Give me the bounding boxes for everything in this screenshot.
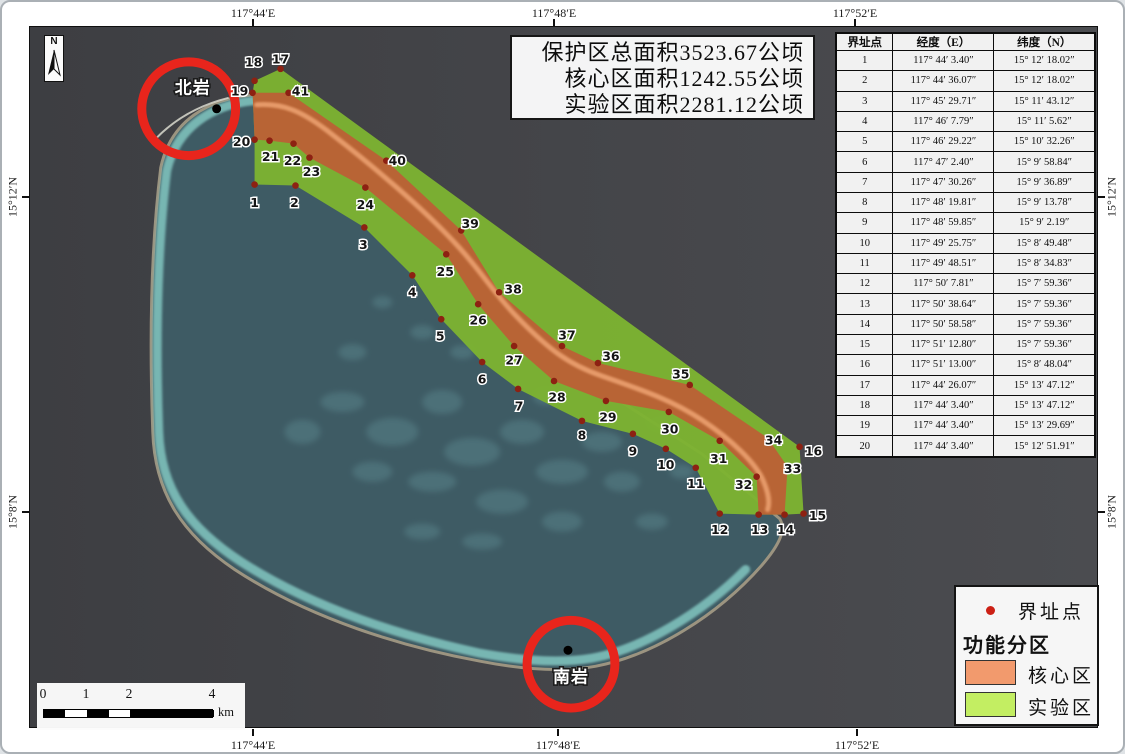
table-row: 11117° 49′ 48.51″15° 8′ 34.83″ — [836, 253, 1095, 273]
table-cell: 6 — [836, 152, 893, 172]
table-cell: 1 — [836, 51, 893, 71]
boundary-point-label: 27 — [505, 353, 522, 368]
landmark-label: 南岩 — [553, 667, 589, 687]
boundary-point-label: 28 — [548, 389, 565, 404]
table-cell: 117° 44′ 3.40″ — [893, 395, 994, 415]
axis-label-latitude: 15°12′N — [6, 177, 21, 217]
table-cell: 117° 51′ 13.00″ — [893, 355, 994, 375]
table-cell: 15° 7′ 59.36″ — [994, 314, 1095, 334]
axis-tick — [22, 511, 29, 513]
table-cell: 15° 7′ 59.36″ — [994, 294, 1095, 314]
boundary-point-label: 40 — [389, 153, 407, 168]
boundary-point-label: 36 — [602, 349, 619, 364]
boundary-point-label: 2 — [290, 195, 299, 210]
area-info-box: 保护区总面积3523.67公顷核心区面积1242.55公顷实验区面积2281.1… — [510, 35, 815, 120]
table-cell: 11 — [836, 253, 893, 273]
boundary-point-dot — [277, 66, 284, 73]
north-arrow-icon — [46, 48, 62, 78]
table-cell: 117° 44′ 3.40″ — [893, 436, 994, 457]
table-cell: 13 — [836, 294, 893, 314]
boundary-point-label: 12 — [711, 522, 728, 537]
table-cell: 4 — [836, 111, 893, 131]
table-cell: 117° 44′ 3.40″ — [893, 51, 994, 71]
legend-item-label: 实验区 — [1028, 693, 1094, 720]
boundary-point-dot — [666, 409, 673, 416]
table-cell: 15° 11′ 43.12″ — [994, 91, 1095, 111]
table-cell: 14 — [836, 314, 893, 334]
area-info-line: 保护区总面积3523.67公顷 — [518, 40, 804, 66]
boundary-point-dot — [443, 251, 450, 258]
table-row: 12117° 50′ 7.81″15° 7′ 59.36″ — [836, 274, 1095, 294]
axis-label-latitude: 15°8′N — [6, 495, 21, 529]
table-cell: 15° 9′ 2.19″ — [994, 213, 1095, 233]
boundary-point-dot — [559, 343, 566, 350]
table-cell: 18 — [836, 395, 893, 415]
boundary-point-label: 18 — [245, 54, 262, 69]
boundary-point-label: 33 — [784, 461, 801, 476]
north-arrow: N — [44, 35, 64, 82]
table-cell: 19 — [836, 416, 893, 436]
scale-bar-segment — [109, 710, 130, 717]
table-cell: 117° 51′ 12.80″ — [893, 334, 994, 354]
table-row: 16117° 51′ 13.00″15° 8′ 48.04″ — [836, 355, 1095, 375]
boundary-point-dot — [511, 343, 518, 350]
boundary-point-label: 37 — [558, 328, 575, 343]
boundary-point-label: 11 — [687, 476, 704, 491]
boundary-point-label: 26 — [469, 313, 486, 328]
table-row: 8117° 48′ 19.81″15° 9′ 13.78″ — [836, 192, 1095, 212]
table-cell: 117° 49′ 48.51″ — [893, 253, 994, 273]
boundary-point-dot — [579, 418, 586, 425]
table-cell: 117° 44′ 3.40″ — [893, 416, 994, 436]
axis-label-latitude: 15°12′N — [1105, 177, 1120, 217]
axis-tick — [252, 729, 254, 736]
table-cell: 17 — [836, 375, 893, 395]
table-header-cell: 经度（E） — [893, 33, 994, 51]
boundary-point-dot — [362, 184, 369, 191]
scale-bar-number: 4 — [209, 686, 216, 702]
scale-bar-segment — [130, 710, 214, 717]
table-cell: 15° 8′ 48.04″ — [994, 355, 1095, 375]
axis-label-longitude: 117°44′E — [231, 738, 275, 753]
table-row: 4117° 46′ 7.79″15° 11′ 5.62″ — [836, 111, 1095, 131]
scale-bar-unit: km — [218, 705, 234, 720]
scale-bar-number: 0 — [40, 686, 47, 702]
boundary-point-label: 4 — [408, 285, 417, 300]
table-row: 17117° 44′ 26.07″15° 13′ 47.12″ — [836, 375, 1095, 395]
boundary-point-dot — [595, 360, 602, 367]
axis-tick — [553, 19, 555, 26]
boundary-point-dot — [716, 438, 723, 445]
table-cell: 7 — [836, 172, 893, 192]
table-cell: 20 — [836, 436, 893, 457]
table-cell: 15° 7′ 59.36″ — [994, 334, 1095, 354]
legend-group-title: 功能分区 — [963, 629, 1051, 658]
boundary-point-dot — [266, 137, 273, 144]
boundary-point-dot — [551, 378, 558, 385]
table-cell: 117° 44′ 26.07″ — [893, 375, 994, 395]
table-cell: 3 — [836, 91, 893, 111]
table-cell: 8 — [836, 192, 893, 212]
scale-bar-number: 2 — [126, 686, 133, 702]
boundary-point-dot — [361, 224, 368, 231]
boundary-point-dot — [663, 446, 670, 453]
table-cell: 5 — [836, 132, 893, 152]
table-cell: 15° 7′ 59.36″ — [994, 274, 1095, 294]
boundary-point-label: 17 — [272, 51, 289, 66]
table-cell: 2 — [836, 71, 893, 91]
area-info-line: 实验区面积2281.12公顷 — [518, 92, 804, 118]
landmark-dot — [212, 104, 221, 113]
boundary-point-dot — [781, 511, 788, 518]
axis-tick — [856, 729, 858, 736]
boundary-point-dot — [251, 78, 258, 85]
boundary-point-label: 5 — [436, 329, 445, 344]
boundary-point-label: 38 — [504, 282, 521, 297]
boundary-point-dot — [692, 464, 699, 471]
table-cell: 15° 13′ 29.69″ — [994, 416, 1095, 436]
table-row: 1117° 44′ 3.40″15° 12′ 18.02″ — [836, 51, 1095, 71]
boundary-point-label: 6 — [478, 371, 487, 386]
boundary-point-dot — [716, 510, 723, 517]
table-cell: 15° 9′ 58.84″ — [994, 152, 1095, 172]
table-row: 19117° 44′ 3.40″15° 13′ 29.69″ — [836, 416, 1095, 436]
table-row: 15117° 51′ 12.80″15° 7′ 59.36″ — [836, 334, 1095, 354]
boundary-point-label: 20 — [233, 134, 251, 149]
boundary-point-dot — [306, 154, 313, 161]
boundary-point-label: 34 — [765, 432, 783, 447]
table-cell: 15° 9′ 36.89″ — [994, 172, 1095, 192]
boundary-point-label: 16 — [805, 443, 822, 458]
table-cell: 15° 9′ 13.78″ — [994, 192, 1095, 212]
legend-item: 实验区 — [956, 692, 1097, 718]
axis-label-longitude: 117°48′E — [536, 738, 580, 753]
north-arrow-letter: N — [45, 36, 63, 48]
scale-bar: 0124 km — [37, 683, 245, 730]
boundary-point-dot — [630, 431, 637, 438]
boundary-point-dot — [285, 90, 292, 97]
table-cell: 15° 8′ 34.83″ — [994, 253, 1095, 273]
map-page: 117°44′E117°48′E117°52′E117°44′E117°48′E… — [0, 0, 1125, 754]
boundary-point-dot — [409, 272, 416, 279]
boundary-point-dot — [796, 444, 803, 451]
axis-tick — [557, 729, 559, 736]
table-cell: 117° 50′ 38.64″ — [893, 294, 994, 314]
table-cell: 117° 48′ 19.81″ — [893, 192, 994, 212]
boundary-point-label: 31 — [710, 451, 727, 466]
table-cell: 15° 12′ 51.91″ — [994, 436, 1095, 457]
legend-swatch — [965, 692, 1016, 717]
table-row: 14117° 50′ 58.58″15° 7′ 59.36″ — [836, 314, 1095, 334]
table-cell: 15° 11′ 5.62″ — [994, 111, 1095, 131]
boundary-point-label: 15 — [809, 508, 826, 523]
boundary-point-label: 14 — [777, 522, 795, 537]
table-row: 10117° 49′ 25.75″15° 8′ 49.48″ — [836, 233, 1095, 253]
boundary-point-dot — [438, 316, 445, 323]
boundary-point-dot-icon — [986, 606, 995, 615]
table-row: 5117° 46′ 29.22″15° 10′ 32.26″ — [836, 132, 1095, 152]
boundary-point-dot — [479, 359, 486, 366]
scale-bar-segment — [87, 710, 109, 717]
table-header-cell: 纬度（N） — [994, 33, 1095, 51]
boundary-point-label: 35 — [672, 367, 689, 382]
table-cell: 15° 13′ 47.12″ — [994, 395, 1095, 415]
boundary-point-dot — [290, 140, 297, 147]
table-cell: 15° 8′ 49.48″ — [994, 233, 1095, 253]
table-cell: 16 — [836, 355, 893, 375]
table-cell: 117° 47′ 30.26″ — [893, 172, 994, 192]
axis-tick — [22, 196, 29, 198]
boundary-point-label: 32 — [735, 477, 752, 492]
boundary-point-dot — [686, 382, 693, 389]
boundary-point-dot — [251, 181, 258, 188]
boundary-point-label: 3 — [359, 237, 368, 252]
boundary-point-label: 39 — [461, 216, 478, 231]
boundary-point-label: 7 — [515, 398, 524, 413]
boundary-point-label: 21 — [262, 149, 279, 164]
boundary-point-label: 30 — [661, 421, 679, 436]
boundary-point-label: 29 — [599, 409, 616, 424]
boundary-point-dot — [603, 398, 610, 405]
table-cell: 117° 46′ 7.79″ — [893, 111, 994, 131]
boundary-point-dot — [755, 511, 762, 518]
table-cell: 15° 12′ 18.02″ — [994, 71, 1095, 91]
boundary-point-dot — [475, 301, 482, 308]
scale-bar-number: 1 — [83, 686, 90, 702]
boundary-point-label: 41 — [292, 83, 309, 98]
legend-swatch — [965, 660, 1016, 685]
area-info-line: 核心区面积1242.55公顷 — [518, 66, 804, 92]
boundary-point-label: 8 — [578, 427, 587, 442]
table-cell: 15° 13′ 47.12″ — [994, 375, 1095, 395]
boundary-point-dot — [800, 510, 807, 517]
table-cell: 117° 50′ 7.81″ — [893, 274, 994, 294]
boundary-point-label: 24 — [357, 197, 375, 212]
landmark-dot — [564, 646, 573, 655]
coordinate-table: 界址点经度（E）纬度（N） 1117° 44′ 3.40″15° 12′ 18.… — [835, 32, 1096, 458]
axis-label-longitude: 117°52′E — [835, 738, 879, 753]
table-row: 7117° 47′ 30.26″15° 9′ 36.89″ — [836, 172, 1095, 192]
boundary-point-label: 25 — [437, 264, 454, 279]
axis-tick — [854, 19, 856, 26]
boundary-point-label: 19 — [231, 83, 248, 98]
table-cell: 15 — [836, 334, 893, 354]
boundary-point-dot — [753, 473, 760, 480]
legend-item-label: 核心区 — [1028, 661, 1094, 688]
table-header-cell: 界址点 — [836, 33, 893, 51]
table-cell: 117° 49′ 25.75″ — [893, 233, 994, 253]
table-cell: 117° 45′ 29.71″ — [893, 91, 994, 111]
legend-boundary-point-label: 界址点 — [1018, 597, 1084, 624]
table-row: 9117° 48′ 59.85″15° 9′ 2.19″ — [836, 213, 1095, 233]
scale-bar-segment — [44, 710, 65, 717]
boundary-point-label: 23 — [303, 164, 320, 179]
table-cell: 117° 46′ 29.22″ — [893, 132, 994, 152]
table-row: 20117° 44′ 3.40″15° 12′ 51.91″ — [836, 436, 1095, 457]
table-cell: 15° 10′ 32.26″ — [994, 132, 1095, 152]
scale-bar-segments — [43, 709, 213, 718]
coordinate-table-header: 界址点经度（E）纬度（N） — [836, 33, 1095, 51]
boundary-point-dot — [249, 90, 256, 97]
scale-bar-segment — [65, 710, 87, 717]
boundary-point-label: 13 — [751, 522, 768, 537]
boundary-point-dot — [251, 136, 258, 143]
boundary-point-label: 10 — [657, 457, 675, 472]
table-cell: 117° 48′ 59.85″ — [893, 213, 994, 233]
axis-tick — [252, 19, 254, 26]
axis-tick — [1098, 196, 1105, 198]
legend-boundary-point-row: 界址点 — [956, 597, 1097, 621]
legend-item: 核心区 — [956, 660, 1097, 686]
boundary-point-label: 1 — [250, 195, 259, 210]
legend: 界址点 功能分区 核心区实验区 — [954, 585, 1099, 726]
table-row: 18117° 44′ 3.40″15° 13′ 47.12″ — [836, 395, 1095, 415]
table-cell: 12 — [836, 274, 893, 294]
table-row: 6117° 47′ 2.40″15° 9′ 58.84″ — [836, 152, 1095, 172]
table-row: 3117° 45′ 29.71″15° 11′ 43.12″ — [836, 91, 1095, 111]
table-row: 2117° 44′ 36.07″15° 12′ 18.02″ — [836, 71, 1095, 91]
boundary-point-dot — [496, 289, 503, 296]
axis-label-latitude: 15°8′N — [1105, 495, 1120, 529]
table-cell: 9 — [836, 213, 893, 233]
table-cell: 117° 50′ 58.58″ — [893, 314, 994, 334]
table-cell: 15° 12′ 18.02″ — [994, 51, 1095, 71]
coordinate-table-grid: 界址点经度（E）纬度（N） 1117° 44′ 3.40″15° 12′ 18.… — [835, 32, 1096, 458]
boundary-point-label: 9 — [629, 443, 638, 458]
boundary-point-dot — [292, 182, 299, 189]
landmark-label: 北岩 — [175, 77, 211, 97]
axis-tick — [1098, 511, 1105, 513]
table-cell: 10 — [836, 233, 893, 253]
table-cell: 117° 44′ 36.07″ — [893, 71, 994, 91]
table-cell: 117° 47′ 2.40″ — [893, 152, 994, 172]
boundary-point-label: 22 — [284, 153, 301, 168]
table-row: 13117° 50′ 38.64″15° 7′ 59.36″ — [836, 294, 1095, 314]
boundary-point-dot — [515, 386, 522, 393]
